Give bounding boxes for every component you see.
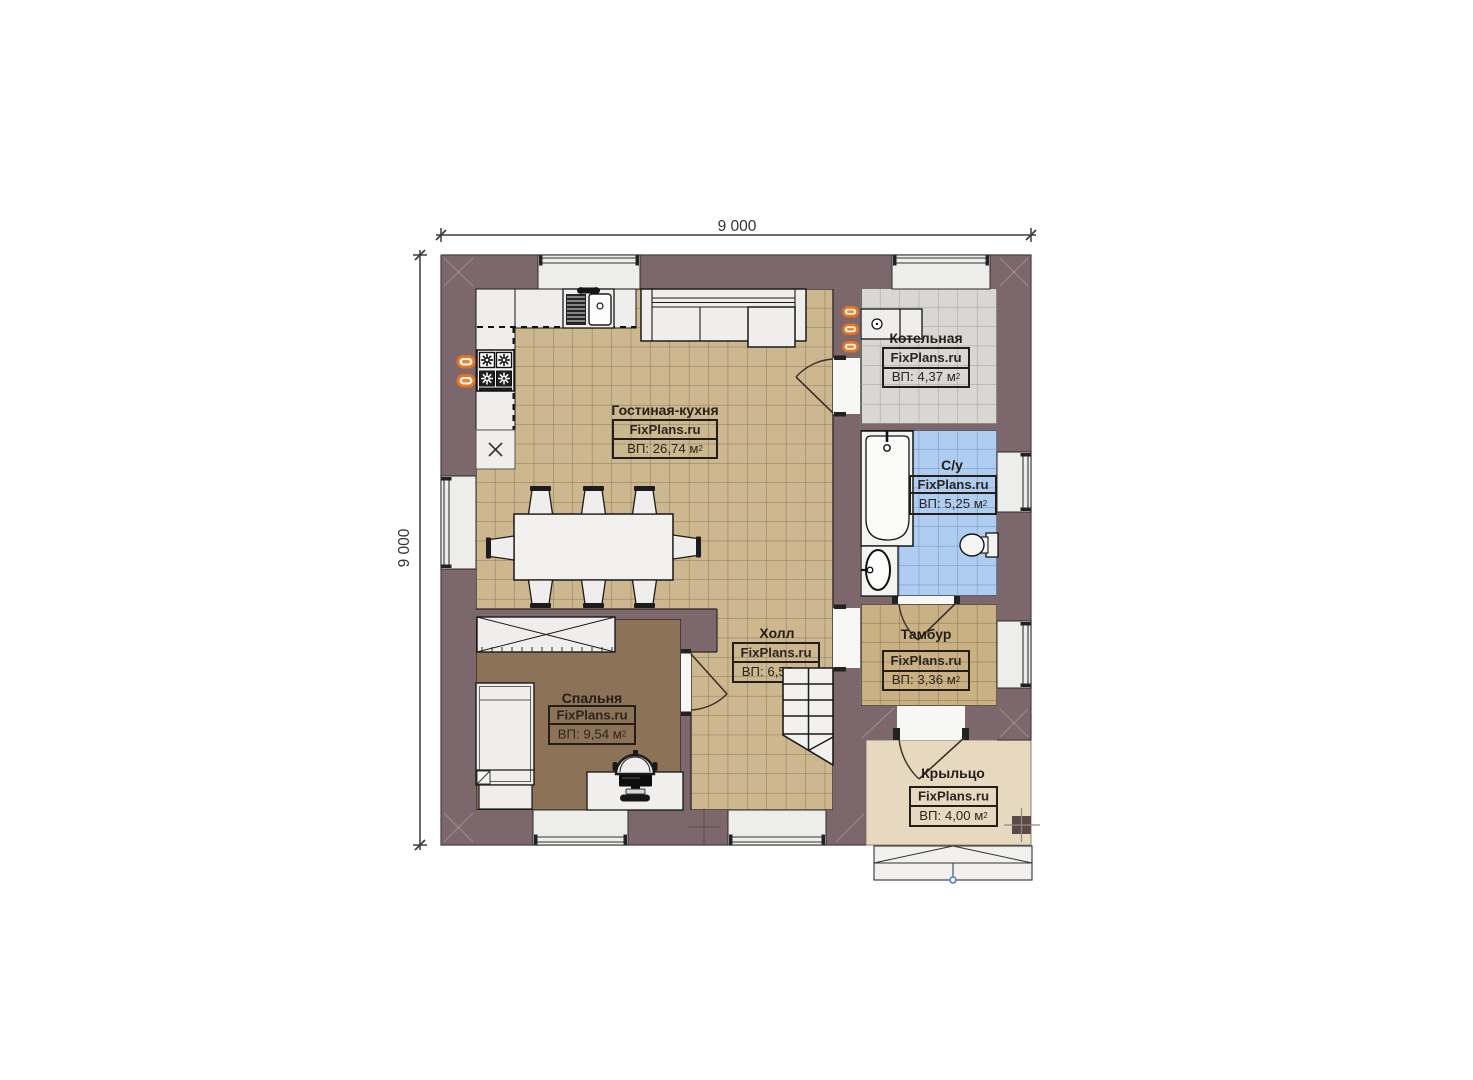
svg-text:FixPlans.ru: FixPlans.ru	[740, 645, 811, 660]
svg-text:FixPlans.ru: FixPlans.ru	[890, 653, 961, 668]
svg-text:ВП: 3,36 м2: ВП: 3,36 м2	[892, 672, 961, 687]
svg-text:С/у: С/у	[941, 457, 963, 473]
svg-text:ВП: 4,37 м2: ВП: 4,37 м2	[892, 369, 961, 384]
svg-text:Спальня: Спальня	[562, 690, 622, 706]
svg-text:ВП: 5,25 м2: ВП: 5,25 м2	[919, 496, 988, 511]
svg-text:9 000: 9 000	[396, 528, 413, 567]
svg-text:Крыльцо: Крыльцо	[921, 765, 985, 781]
svg-text:ВП: 9,54 м2: ВП: 9,54 м2	[558, 727, 627, 742]
svg-text:FixPlans.ru: FixPlans.ru	[918, 789, 989, 804]
svg-text:FixPlans.ru: FixPlans.ru	[556, 708, 627, 723]
svg-text:Котельная: Котельная	[889, 330, 962, 346]
svg-text:FixPlans.ru: FixPlans.ru	[917, 477, 988, 492]
svg-text:ВП: 4,00 м2: ВП: 4,00 м2	[919, 808, 988, 823]
svg-text:ВП: 26,74 м2: ВП: 26,74 м2	[627, 441, 703, 456]
svg-text:Тамбур: Тамбур	[901, 626, 952, 642]
svg-text:Холл: Холл	[759, 625, 794, 641]
svg-text:FixPlans.ru: FixPlans.ru	[629, 422, 700, 437]
svg-text:9 000: 9 000	[718, 218, 757, 235]
svg-text:FixPlans.ru: FixPlans.ru	[890, 350, 961, 365]
svg-text:Гостиная-кухня: Гостиная-кухня	[611, 402, 718, 418]
